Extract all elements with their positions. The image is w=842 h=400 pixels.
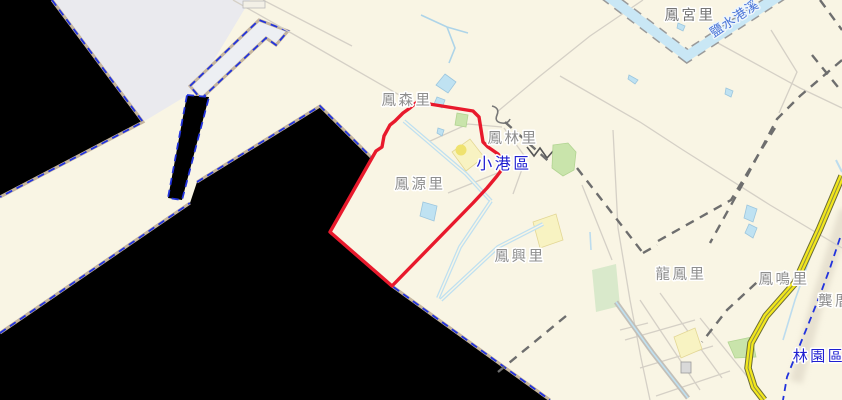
- label-fengyuan-li: 鳳源里: [395, 176, 446, 193]
- map-viewport: 鳳宮里 鹽水港溪 鳳森里 鳳林里 小港區 鳳源里 鳳興里 龍鳳里 鳳鳴里 龔厝 …: [0, 0, 842, 400]
- label-fenglin-li: 鳳林里: [488, 130, 539, 147]
- label-fengxing-li: 鳳興里: [495, 248, 546, 265]
- building-block: [681, 362, 691, 373]
- label-xiaogang-district: 小港區: [476, 154, 532, 173]
- map-canvas[interactable]: 鳳宮里 鹽水港溪 鳳森里 鳳林里 小港區 鳳源里 鳳興里 龍鳳里 鳳鳴里 龔厝 …: [0, 0, 842, 400]
- label-fenggong-li: 鳳宮里: [665, 7, 716, 24]
- label-linyuan-district: 林園區: [793, 347, 842, 365]
- building-block: [243, 1, 265, 8]
- label-longfeng-li: 龍鳳里: [656, 266, 707, 283]
- label-gongcuo: 龔厝: [818, 292, 842, 310]
- label-fengming-li: 鳳鳴里: [759, 271, 810, 288]
- label-fengsen-li: 鳳森里: [382, 92, 433, 109]
